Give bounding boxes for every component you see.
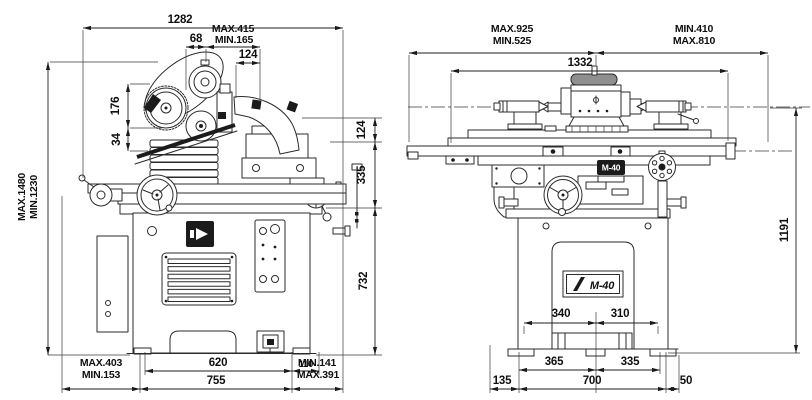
dim-margin-right: 50 bbox=[680, 375, 692, 387]
dim-slot-right: 310 bbox=[611, 308, 630, 320]
dim-travel-left-min: MIN.525 bbox=[493, 35, 532, 47]
sv-vent-grille bbox=[162, 253, 236, 305]
fv-saddle-badge: M-40 bbox=[597, 160, 625, 175]
dim-height-min: MIN.1230 bbox=[28, 175, 40, 219]
sv-logo-plate bbox=[186, 221, 214, 247]
dim-belt-offset: 68 bbox=[190, 33, 203, 45]
dim-feet-span: 620 bbox=[209, 357, 228, 369]
dim-center-height: 1191 bbox=[779, 217, 791, 242]
fv-wheel-guard bbox=[571, 74, 617, 85]
sv-power-box bbox=[257, 331, 284, 352]
fv-saddle-badge-label: M-40 bbox=[602, 163, 621, 173]
sv-arch-cutout bbox=[170, 331, 236, 353]
dim-right-upper: 124 bbox=[356, 120, 368, 139]
fv-left-tailstock bbox=[494, 101, 548, 129]
side-view-machine bbox=[79, 39, 362, 354]
dim-overall-width: 1282 bbox=[168, 14, 193, 26]
fv-wheelhead bbox=[536, 66, 648, 132]
dim-travel-right-max: MAX.810 bbox=[673, 35, 716, 47]
dim-foot-right: 335 bbox=[621, 356, 640, 368]
dim-pulley-offset: 124 bbox=[239, 49, 258, 61]
fv-nameplate-label: M-40 bbox=[590, 280, 615, 292]
fv-right-tailstock bbox=[637, 101, 699, 129]
dim-base-width-front: 700 bbox=[583, 375, 602, 387]
dim-height-max: MAX.1480 bbox=[16, 173, 28, 221]
fv-saddle: M-40 bbox=[478, 147, 710, 218]
dim-overhang-right-max: MAX.391 bbox=[297, 369, 340, 381]
dim-overhang-right-min: MIN.141 bbox=[298, 357, 337, 369]
dim-right-lower: 732 bbox=[358, 272, 370, 291]
dim-table-length: 1332 bbox=[568, 57, 593, 69]
dim-travel-left-max: MAX.925 bbox=[491, 23, 534, 35]
dim-base-width: 755 bbox=[207, 375, 226, 387]
sv-control-panel bbox=[255, 220, 285, 292]
machine-dimension-drawing: 1282 68 MAX.415 MIN.165 124 176 34 MAX.1… bbox=[0, 0, 812, 400]
fv-nameplate: M-40 bbox=[563, 271, 623, 297]
technical-drawing-page: 1282 68 MAX.415 MIN.165 124 176 34 MAX.1… bbox=[0, 0, 812, 400]
front-view-machine: M-40 bbox=[407, 66, 810, 356]
dim-foot-left: 365 bbox=[545, 356, 564, 368]
dim-margin-left: 135 bbox=[493, 375, 512, 387]
dim-overhang-left-max: MAX.403 bbox=[80, 357, 123, 369]
dim-travel-right-min: MIN.410 bbox=[675, 23, 714, 35]
dim-right-mid: 335 bbox=[356, 165, 368, 184]
fv-base: M-40 bbox=[508, 218, 800, 356]
dim-col-upper: 176 bbox=[110, 97, 122, 116]
dim-col-lower: 34 bbox=[111, 133, 123, 146]
fv-index-plate bbox=[649, 151, 676, 217]
dim-wheelhead-min: MIN.165 bbox=[215, 34, 254, 46]
sv-table-handwheel bbox=[137, 175, 177, 215]
dim-slot-left: 340 bbox=[552, 308, 571, 320]
dim-overhang-left-min: MIN.153 bbox=[82, 369, 121, 381]
